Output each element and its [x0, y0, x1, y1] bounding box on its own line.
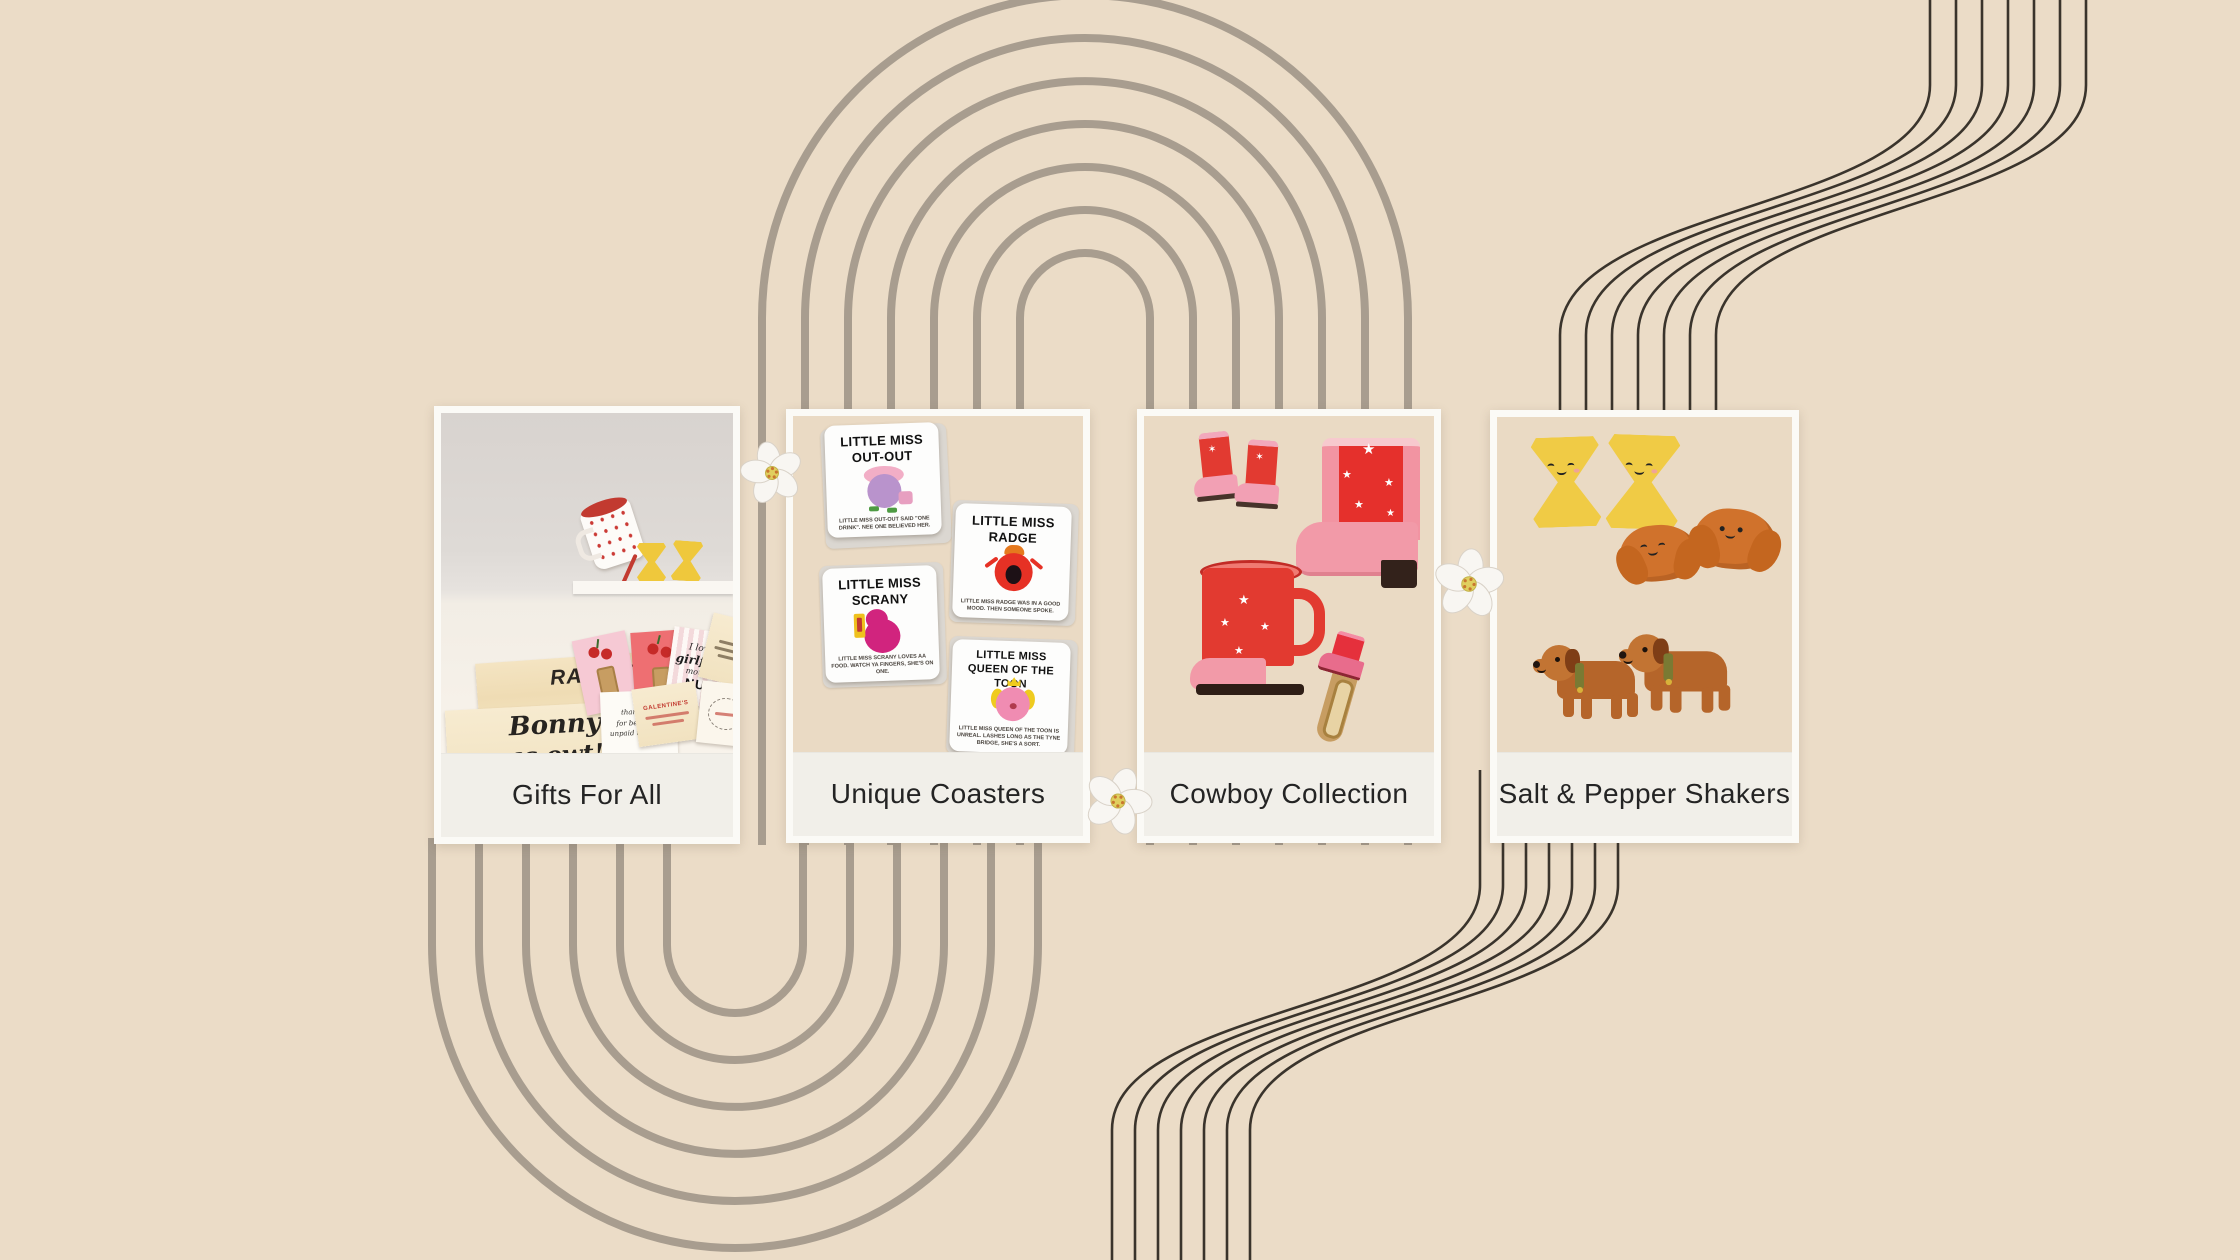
gifts-photo: RADGIE... ❤ Bonny as owt! I: [441, 413, 733, 753]
card-label: Cowboy Collection: [1170, 778, 1409, 810]
cherry-icon: [587, 646, 600, 659]
card-label-strip: Unique Coasters: [793, 752, 1083, 836]
little-miss-out-out-character: [859, 463, 909, 513]
card-label-strip: Salt & Pepper Shakers: [1497, 752, 1792, 836]
little-miss-scrany-character: [857, 608, 907, 658]
pasta-bow-shaker-1: [1530, 436, 1601, 528]
coasters-photo: LITTLE MISS OUT-OUT LITTLE MISS OUT-OUT …: [793, 416, 1083, 752]
galentines-coaster: GALENTINE'S: [631, 681, 702, 747]
category-card-unique-coasters[interactable]: LITTLE MISS OUT-OUT LITTLE MISS OUT-OUT …: [786, 409, 1090, 843]
little-miss-radge-character: [989, 544, 1039, 596]
card-label-strip: Cowboy Collection: [1144, 752, 1434, 836]
hearts-mug: [579, 498, 647, 571]
page: RADGIE... ❤ Bonny as owt! I: [0, 0, 2240, 1260]
croissant-shaker-2: [1691, 506, 1779, 572]
card-label: Salt & Pepper Shakers: [1499, 778, 1791, 810]
shelf-ledge: [573, 581, 733, 594]
coaster-little-miss-scrany: LITTLE MISS SCRANY LITTLE MISS SCRANY LO…: [822, 565, 940, 683]
cowboy-photo: ✶ ✶ ★ ★ ★ ★ ★ ★ ★ ★ ★: [1144, 416, 1434, 752]
little-miss-queen-character: [988, 680, 1038, 730]
cowboy-boot-mug: ★ ★ ★ ★: [1190, 558, 1325, 698]
dachshund-shaker-2: [1627, 634, 1752, 729]
cherry-icon: [647, 643, 659, 655]
pink-boot-shaker-2: ✶: [1234, 438, 1287, 513]
card-label: Unique Coasters: [831, 778, 1046, 810]
pasta-bow-shaker-2: [1605, 434, 1680, 530]
category-card-gifts-for-all[interactable]: RADGIE... ❤ Bonny as owt! I: [434, 406, 740, 844]
coaster-little-miss-radge: LITTLE MISS RADGE LITTLE MISS RADGE WAS …: [952, 503, 1072, 621]
card-label: Gifts For All: [512, 779, 662, 811]
card-label-strip: Gifts For All: [441, 753, 733, 837]
flower-decorations: [0, 0, 2240, 1260]
shakers-photo: [1497, 417, 1792, 752]
category-card-salt-pepper-shakers[interactable]: Salt & Pepper Shakers: [1490, 410, 1799, 843]
pasta-bow-shaker-small-2: [671, 540, 704, 582]
pasta-bow-shaker-small-1: [637, 543, 666, 581]
background-line-arcs: [0, 0, 2240, 1260]
croissant-shaker-1: [1616, 521, 1701, 585]
coaster-little-miss-out-out: LITTLE MISS OUT-OUT LITTLE MISS OUT-OUT …: [824, 422, 942, 538]
coaster-little-miss-queen-of-the-toon: LITTLE MISS QUEEN OF THE TOON LITTLE MIS…: [949, 639, 1071, 752]
category-card-cowboy-collection[interactable]: ✶ ✶ ★ ★ ★ ★ ★ ★ ★ ★ ★: [1137, 409, 1441, 843]
doodle-coaster: [696, 680, 733, 747]
